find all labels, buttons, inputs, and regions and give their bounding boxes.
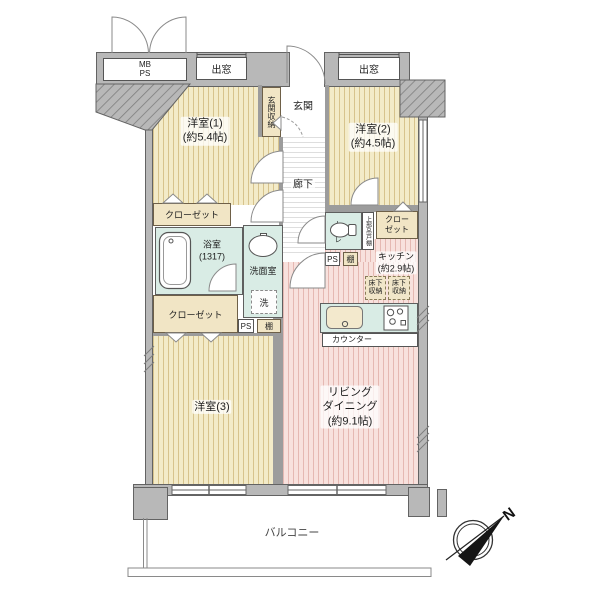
bay-window-left-label: 出窓 [212,61,232,76]
room1-floor-extension [258,137,279,205]
pillar-bottom-right-leg [437,489,447,517]
underfloor-storage-left: 床下収納 [365,276,386,300]
entrance-label: 玄関 [293,101,313,114]
hallway-floor [283,137,325,255]
balcony-label: バルコニー [265,526,320,540]
bath-label: 浴室 (1317) [199,239,225,262]
shelf-lower: 棚 [257,319,281,333]
room1-label: 洋室(1) (約5.4帖) [181,117,230,146]
compass-needle [458,516,504,566]
underfloor-storage-right: 床下収納 [388,276,410,300]
shelf-upper-label: 棚 [347,254,355,265]
closet-room1-label: クローゼット [165,208,219,221]
compass: N [446,504,519,566]
hallway-label: 廊下 [291,179,315,192]
meter-box-label: MBPS [139,61,151,79]
underfloor-storage-right-label: 床下収納 [392,280,406,296]
entrance-storage: 玄関収納 [262,87,281,137]
closet-room2-label: クローゼット [385,215,409,234]
wall-right [418,115,428,487]
toilet-label: トイレ [333,220,342,244]
shelf-lower-label: 棚 [265,321,273,332]
shelf-upper: 棚 [343,252,358,266]
closet-room2: クローゼット [376,211,418,239]
upper-cabinet-label: 上部吊戸棚 [364,216,373,246]
laundry-label: 洗 [259,296,268,309]
room2-label: 洋室(2) (約4.5帖) [349,123,398,152]
bay-window-left: 出窓 [196,57,247,80]
meter-box-doors-left [112,17,149,53]
wall-left [145,125,153,487]
wall-room3-ldk [273,318,283,484]
kitchen-label: キッチン (約2.9帖) [376,251,417,274]
toilet-area: トイレ [325,212,362,250]
closet-room3: クローゼット [153,295,238,333]
wall-room3-top [153,333,283,336]
pillar-bottom-left [133,487,168,520]
floorplan-canvas: トイレ MBPS 出窓 出窓 玄関収納 クローゼット クローゼット クローゼット… [0,0,600,600]
bay-window-right-label: 出窓 [359,61,379,76]
pillar-bottom-right [408,487,430,517]
wall-bottom [133,484,428,496]
pipe-space-upper-label: PS [327,255,338,264]
entrance-door [287,46,325,84]
room3-label: 洋室(3) [192,400,231,414]
living-dining-label: リビング ダイニング (約9.1帖) [321,386,380,429]
closet-room3-label: クローゼット [168,308,222,321]
washroom-label: 洗面室 [249,266,276,278]
compass-north-label: N [500,504,519,524]
pipe-space-lower: PS [238,319,254,333]
bay-window-right: 出窓 [338,57,400,80]
pipe-space-lower-label: PS [241,322,252,331]
upper-cabinet: 上部吊戸棚 [362,212,374,250]
entrance-storage-label: 玄関収納 [266,96,277,128]
underfloor-storage-left-label: 床下収納 [369,280,383,296]
pipe-space-upper: PS [325,252,340,266]
laundry-space: 洗 [251,290,277,314]
counter-label: カウンター [332,335,372,345]
meter-box-doors-right [150,17,187,53]
kitchen-counter-area [320,303,418,333]
meter-box: MBPS [103,58,187,81]
closet-room1: クローゼット [153,203,231,226]
